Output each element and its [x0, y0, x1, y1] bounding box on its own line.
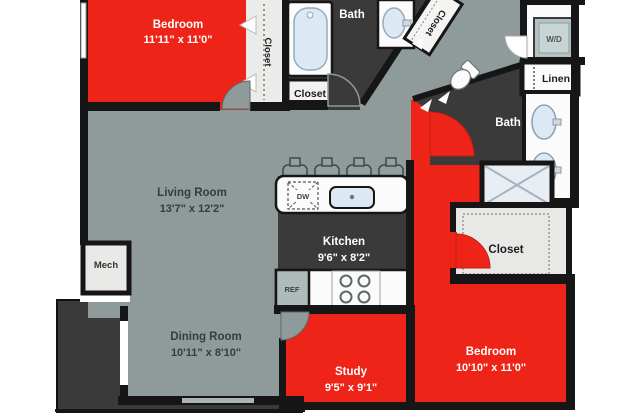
- room-dims: 10'11" x 8'10": [171, 347, 241, 359]
- wall: [566, 274, 575, 408]
- wall: [282, 0, 289, 106]
- bath-top-label: Bath: [339, 9, 365, 21]
- room-dims: 9'6" x 8'2": [318, 252, 370, 264]
- bedroom-bottom-floor: [411, 278, 571, 408]
- floorplan-svg: Closet W/D Linen Bath Closet: [0, 0, 640, 415]
- dining-slider-door: [182, 398, 254, 403]
- wall: [80, 104, 88, 245]
- closet-bedroom-top-label: Closet: [262, 37, 273, 67]
- closet-bath-top-label: Closet: [294, 88, 327, 100]
- wall: [406, 402, 575, 410]
- room-name: Bedroom: [153, 19, 203, 31]
- wall: [451, 274, 575, 283]
- mech-label: Mech: [94, 260, 118, 271]
- shower-icon: [482, 163, 552, 207]
- refrigerator-label: REF: [285, 285, 300, 294]
- room-dims: 13'7" x 12'2": [160, 203, 225, 215]
- washer-dryer-icon: W/D: [534, 18, 574, 58]
- wall: [406, 160, 414, 312]
- wall: [80, 102, 220, 111]
- floorplan-image: Closet W/D Linen Bath Closet: [0, 0, 640, 415]
- bedroom-top-floor: [85, 0, 248, 110]
- room-name: Kitchen: [323, 236, 365, 248]
- wall: [406, 308, 415, 408]
- balcony-door-gap: [120, 321, 128, 385]
- wall: [571, 0, 579, 208]
- window: [81, 3, 86, 58]
- bath-right-label: Bath: [495, 117, 521, 129]
- room-name: Bedroom: [466, 346, 516, 358]
- room-dims: 11'11" x 11'0": [144, 34, 213, 46]
- closet-walkin-label: Closet: [488, 244, 523, 256]
- wall: [120, 306, 128, 322]
- laundry-label: W/D: [546, 35, 562, 44]
- dishwasher-label: DW: [297, 192, 310, 201]
- room-name: Dining Room: [170, 331, 242, 343]
- room-name: Study: [335, 366, 368, 378]
- refrigerator-icon: REF: [276, 270, 309, 308]
- wall: [520, 0, 527, 36]
- room-dims: 10'10" x 11'0": [456, 362, 526, 374]
- bathtub-icon: [288, 2, 332, 76]
- linen-label: Linen: [542, 73, 570, 85]
- balcony-bottom-wall: [55, 409, 305, 412]
- room-dims: 9'5" x 9'1": [325, 382, 377, 394]
- wall: [284, 100, 328, 110]
- stove-icon: [332, 271, 380, 307]
- room-name: Living Room: [157, 187, 227, 199]
- kitchen-sink-icon: [330, 187, 374, 208]
